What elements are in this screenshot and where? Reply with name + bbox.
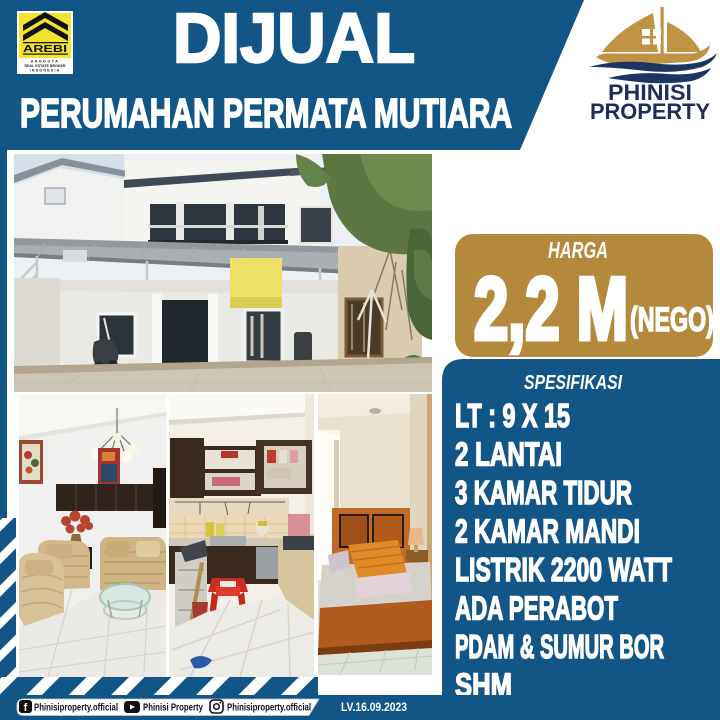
svg-text:ADA PERABOT: ADA PERABOT xyxy=(455,590,618,627)
svg-text:LISTRIK 2200 WATT: LISTRIK 2200 WATT xyxy=(455,551,672,588)
svg-text:PROPERTY: PROPERTY xyxy=(590,99,710,124)
svg-text:SPESIFIKASI: SPESIFIKASI xyxy=(524,372,622,394)
svg-text:PDAM & SUMUR BOR: PDAM & SUMUR BOR xyxy=(455,628,664,665)
svg-text:Phinisi Property: Phinisi Property xyxy=(143,703,203,714)
svg-text:AREBI: AREBI xyxy=(23,43,67,55)
svg-text:INDONESIA: INDONESIA xyxy=(30,69,61,73)
svg-text:2 KAMAR MANDI: 2 KAMAR MANDI xyxy=(455,513,640,550)
svg-text:PERUMAHAN PERMATA MUTIARA: PERUMAHAN PERMATA MUTIARA xyxy=(20,90,512,136)
svg-text:ANGGOTA: ANGGOTA xyxy=(31,60,60,64)
svg-text:(NEGO): (NEGO) xyxy=(630,301,714,339)
svg-text:f: f xyxy=(24,702,28,714)
svg-text:REAL ESTATE BROKER: REAL ESTATE BROKER xyxy=(25,64,66,68)
svg-text:2 LANTAI: 2 LANTAI xyxy=(455,436,562,473)
svg-text:Phinisiproperty.official: Phinisiproperty.official xyxy=(34,703,118,714)
svg-text:LV.16.09.2023: LV.16.09.2023 xyxy=(341,700,407,714)
svg-text:2,2 M: 2,2 M xyxy=(474,259,628,358)
svg-text:3 KAMAR TIDUR: 3 KAMAR TIDUR xyxy=(455,474,632,511)
svg-text:DIJUAL: DIJUAL xyxy=(173,0,415,77)
svg-text:LT : 9 X 15: LT : 9 X 15 xyxy=(455,397,570,434)
svg-text:Phinisiproperty.official: Phinisiproperty.official xyxy=(227,703,311,714)
